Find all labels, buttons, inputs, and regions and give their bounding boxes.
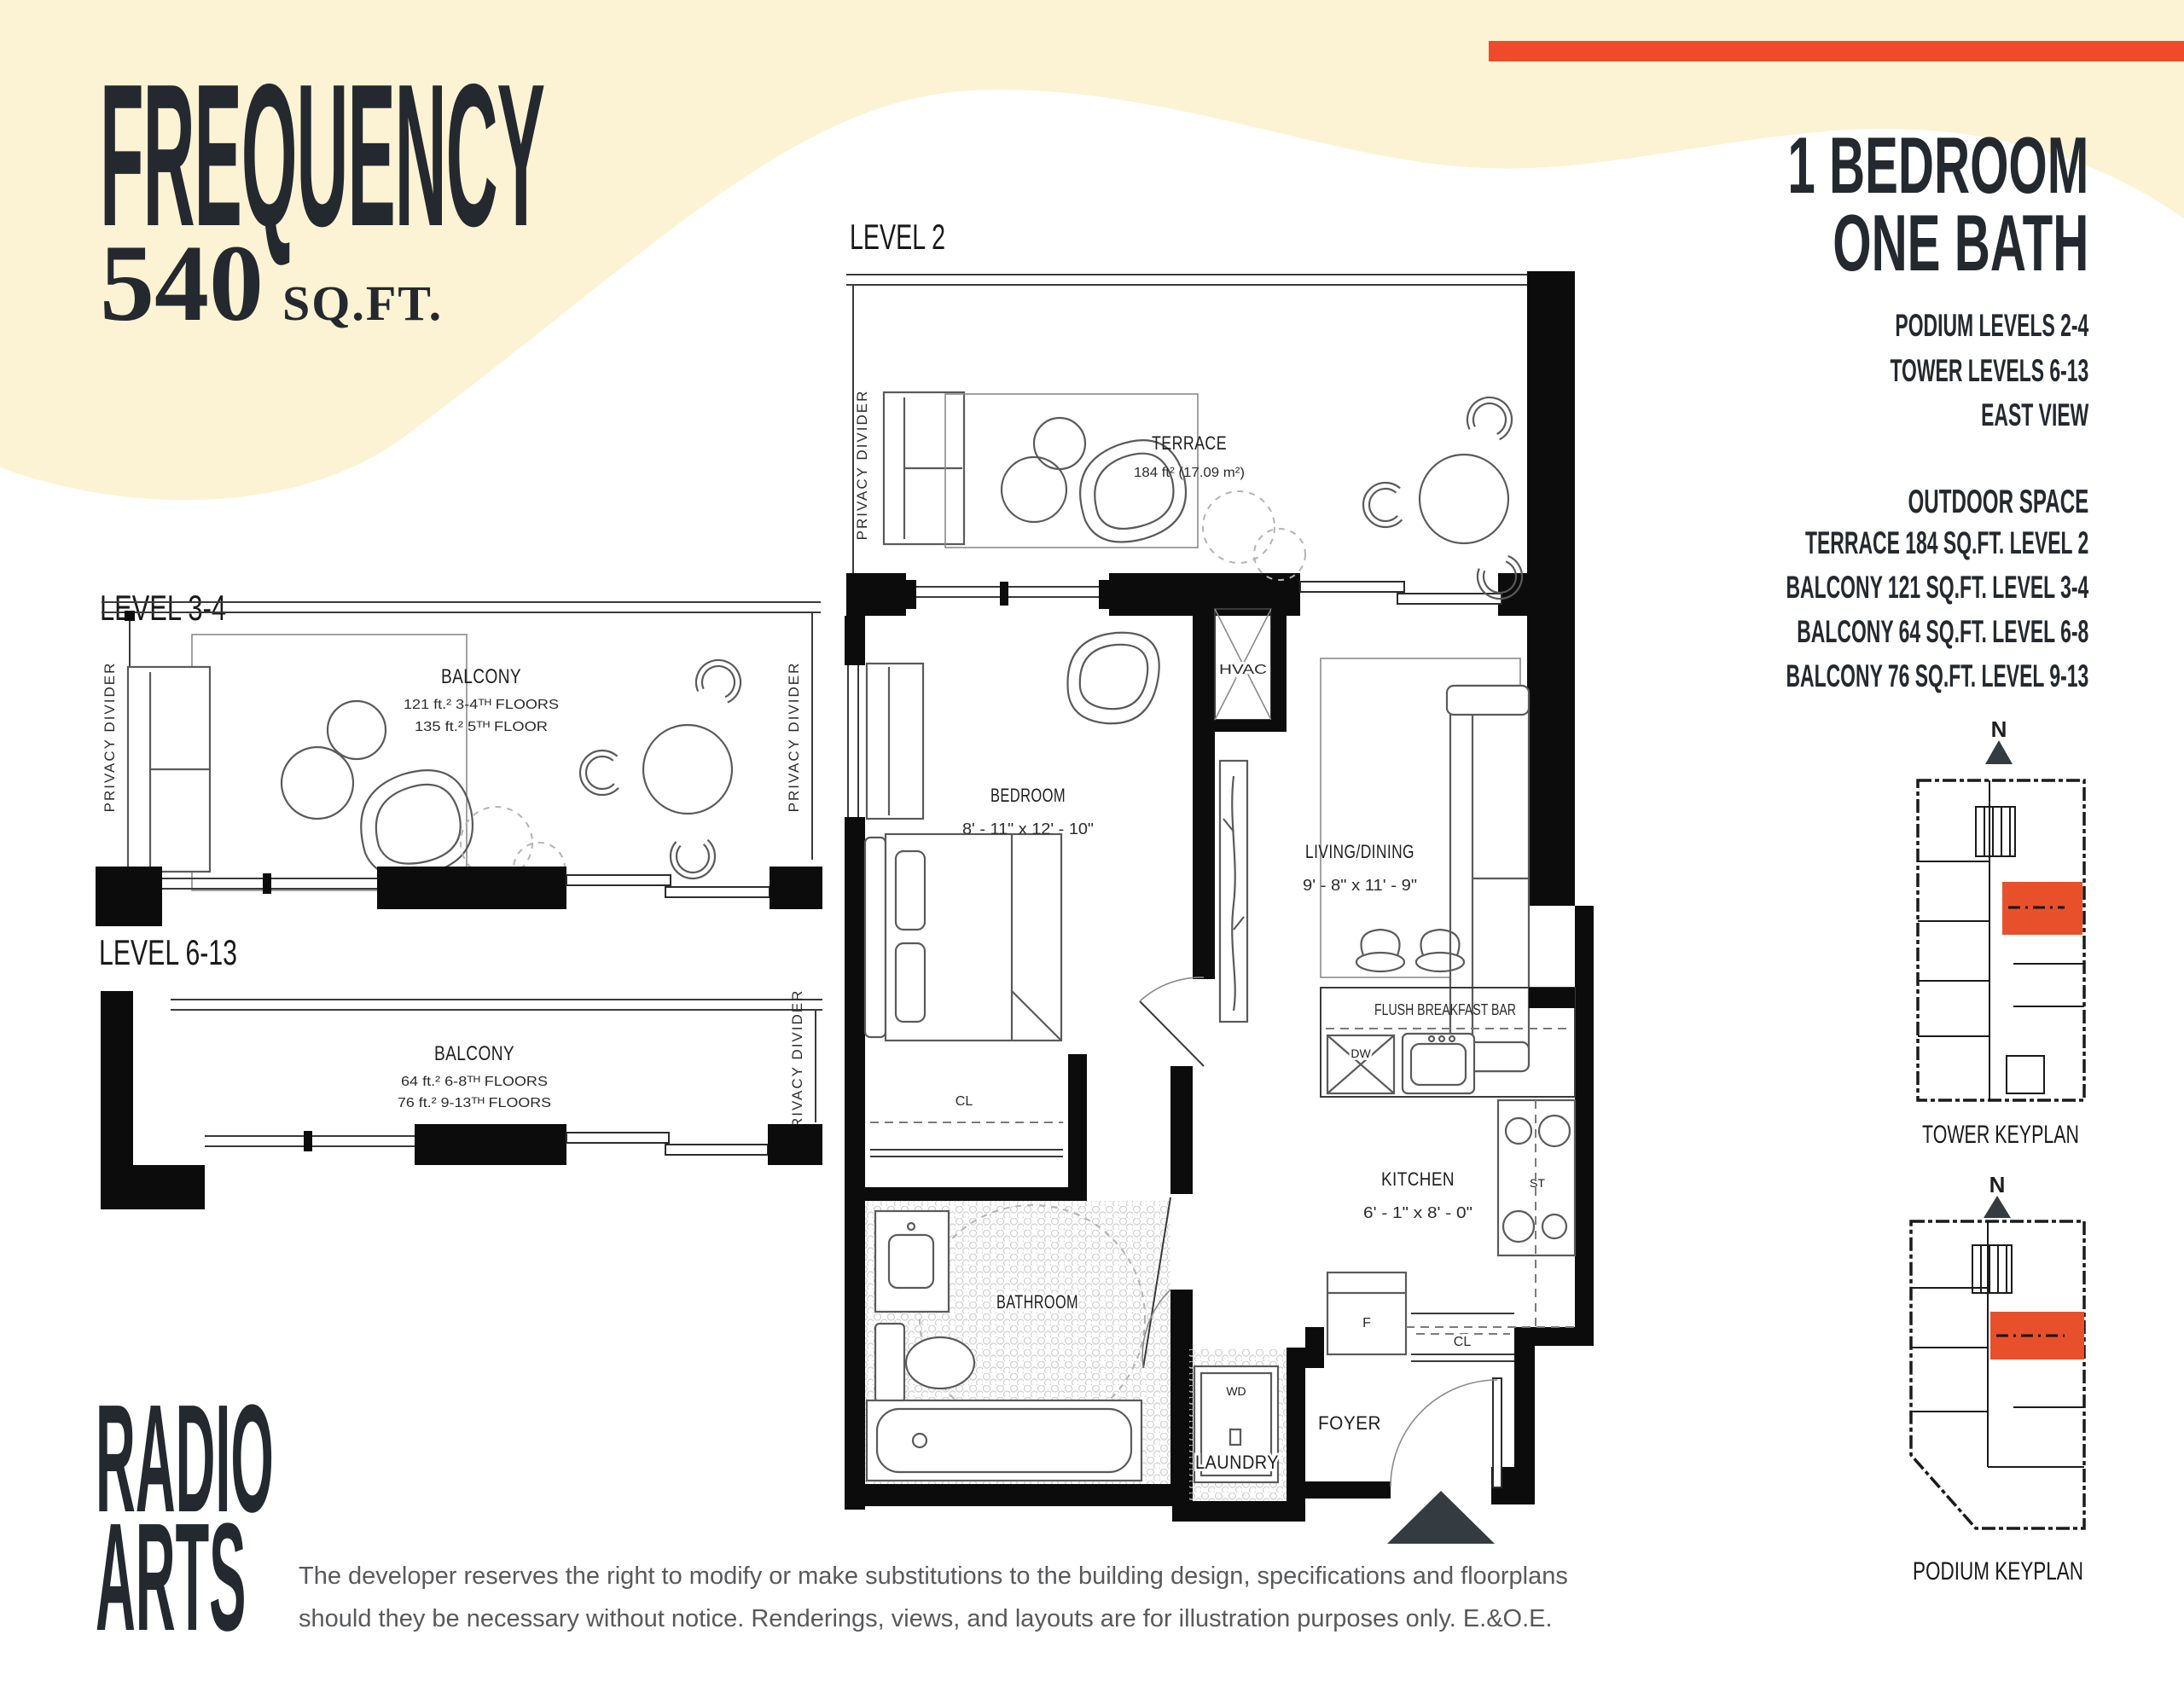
balcony-area1: 64 ft.² 6-8ᵀᴴ FLOORS	[401, 1075, 548, 1089]
area-value: 540	[100, 229, 264, 338]
balcony-coffee-table	[282, 747, 353, 819]
tower-keyplan: N TOWER KEYPLAN	[1918, 716, 2084, 1149]
dishwasher: DW	[1327, 1035, 1394, 1093]
disclaimer: The developer reserves the right to modi…	[299, 1556, 1568, 1641]
terrace-dining-set	[1354, 390, 1529, 606]
stove-label: ST	[1530, 1176, 1545, 1190]
bedroom-door	[1140, 977, 1204, 1066]
privacy-divider-label: PRIVACY DIVIDER	[786, 662, 802, 813]
balcony-area1: 121 ft.² 3-4ᵀᴴ FLOORS	[404, 698, 559, 712]
bedroom-closet: CL	[863, 1054, 1087, 1201]
level6-13-plan: LEVEL 6-13 PRIVACY DIVIDER BALCONY 64 ft…	[99, 932, 822, 1209]
fridge: F	[1327, 1272, 1406, 1354]
hall-console	[1220, 761, 1247, 1022]
level3-4-plan: LEVEL 3-4 PRIVACY DIVIDER PRIVACY DIVIDE…	[96, 588, 822, 926]
terrace-area-label: 184 ft² (17.09 m²)	[1134, 466, 1245, 480]
terrace-lounge-chair	[1080, 440, 1186, 542]
foyer-label: FOYER	[1318, 1412, 1381, 1434]
outdoor-space-item: TERRACE 184 SQ.FT. LEVEL 2	[1786, 521, 2088, 565]
plan-area: 540 SQ.FT.	[100, 229, 443, 338]
bathroom-label: BATHROOM	[996, 1291, 1078, 1313]
disclaimer-line2: should they be necessary without notice.…	[299, 1598, 1568, 1641]
level2-label: LEVEL 2	[850, 217, 945, 257]
hvac-closet: HVAC	[1215, 609, 1287, 732]
foyer-closet-label: CL	[1454, 1335, 1472, 1349]
north-label: N	[1991, 716, 2007, 742]
balcony-label: BALCONY	[434, 1042, 514, 1065]
unit-info-column: 1 BEDROOM ONE BATH PODIUM LEVELS 2-4 TOW…	[1786, 126, 2088, 699]
balcony-lounge-chair	[361, 770, 473, 877]
tower-keyplan-label: TOWER KEYPLAN	[1922, 1121, 2079, 1149]
balcony-side-table	[328, 701, 386, 759]
terrace-label: TERRACE	[1152, 432, 1227, 454]
foyer-closet: CL	[1411, 1313, 1514, 1361]
level3-4-label: LEVEL 3-4	[100, 588, 226, 628]
bathroom: BATHROOM	[865, 1066, 1193, 1501]
balcony-area2: 135 ft.² 5ᵀᴴ FLOOR	[415, 720, 548, 734]
laundry: WD LAUNDRY	[1189, 1348, 1305, 1506]
privacy-divider-label: PRIVACY DIVIDER	[854, 390, 870, 541]
unit-type-line2: ONE BATH	[1786, 204, 2088, 281]
living-dims: 9' - 8" x 11' - 9"	[1303, 877, 1417, 894]
laundry-label: LAUNDRY	[1195, 1452, 1279, 1473]
fridge-label: F	[1362, 1316, 1371, 1330]
terrace-coffee-table	[1002, 457, 1066, 522]
north-arrow-icon	[1984, 1196, 2011, 1218]
area-unit: SQ.FT.	[282, 275, 443, 332]
view-direction: EAST VIEW	[1786, 393, 2088, 438]
bedroom-dresser	[867, 664, 923, 819]
kitchen-dims: 6' - 1" x 8' - 0"	[1363, 1204, 1472, 1221]
disclaimer-line1: The developer reserves the right to modi…	[299, 1556, 1568, 1598]
accent-bar	[1489, 41, 2184, 61]
north-label: N	[1989, 1172, 2006, 1197]
hvac-label: HVAC	[1219, 663, 1267, 677]
bathroom-vanity	[875, 1211, 949, 1312]
bedroom-label: BEDROOM	[990, 785, 1066, 806]
balcony-label: BALCONY	[441, 665, 521, 688]
kitchen-label: KITCHEN	[1381, 1168, 1455, 1190]
level-range-tower: TOWER LEVELS 6-13	[1786, 349, 2088, 393]
bed	[865, 834, 1061, 1041]
washer-dryer-label: WD	[1226, 1384, 1246, 1398]
outdoor-space-item: BALCONY 64 SQ.FT. LEVEL 6-8	[1786, 610, 2088, 654]
kitchen-sink	[1403, 1034, 1474, 1093]
floorplan-sheet: LEVEL 2 PRIVACY DIVIDER	[0, 0, 2184, 1687]
bedroom-chair	[1067, 633, 1159, 724]
balcony-sofa	[128, 667, 210, 872]
level2-plan: LEVEL 2 PRIVACY DIVIDER	[845, 217, 1594, 1544]
entry-arrow	[1387, 1491, 1495, 1544]
outdoor-space-item: BALCONY 76 SQ.FT. LEVEL 9-13	[1786, 654, 2088, 699]
podium-keyplan-label: PODIUM KEYPLAN	[1913, 1557, 2083, 1586]
living-label: LIVING/DINING	[1305, 841, 1414, 862]
entry-door	[1391, 1378, 1501, 1487]
podium-keyplan: N PODIUM KEYPLAN	[1911, 1172, 2084, 1586]
terrace-plant	[1203, 491, 1305, 580]
level-range-podium: PODIUM LEVELS 2-4	[1786, 304, 2088, 348]
privacy-divider-label: PRIVACY DIVIDER	[789, 989, 805, 1140]
level6-13-label: LEVEL 6-13	[99, 932, 237, 972]
dishwasher-label: DW	[1350, 1046, 1371, 1060]
balcony-area2: 76 ft.² 9-13ᵀᴴ FLOORS	[398, 1096, 551, 1110]
balcony-outline	[192, 635, 467, 890]
bathtub	[867, 1400, 1141, 1481]
north-arrow-icon	[1985, 740, 2013, 764]
terrace-side-table	[1034, 418, 1085, 469]
privacy-divider-label: PRIVACY DIVIDER	[102, 662, 118, 813]
terrace-sofa	[884, 392, 964, 544]
unit-type-line1: 1 BEDROOM	[1786, 126, 2088, 204]
bedroom-closet-label: CL	[955, 1094, 973, 1109]
developer-logo: RADIO ARTS	[96, 1400, 274, 1637]
foyer: FOYER	[1318, 1378, 1501, 1544]
balcony-dining-set	[571, 653, 747, 888]
breakfast-bar-label: FLUSH BREAKFAST BAR	[1374, 1001, 1516, 1018]
bedroom-dims: 8' - 11" x 12' - 10"	[962, 820, 1094, 838]
outdoor-space-item: BALCONY 121 SQ.FT. LEVEL 3-4	[1786, 565, 2088, 610]
outdoor-space-title: OUTDOOR SPACE	[1786, 484, 2088, 521]
